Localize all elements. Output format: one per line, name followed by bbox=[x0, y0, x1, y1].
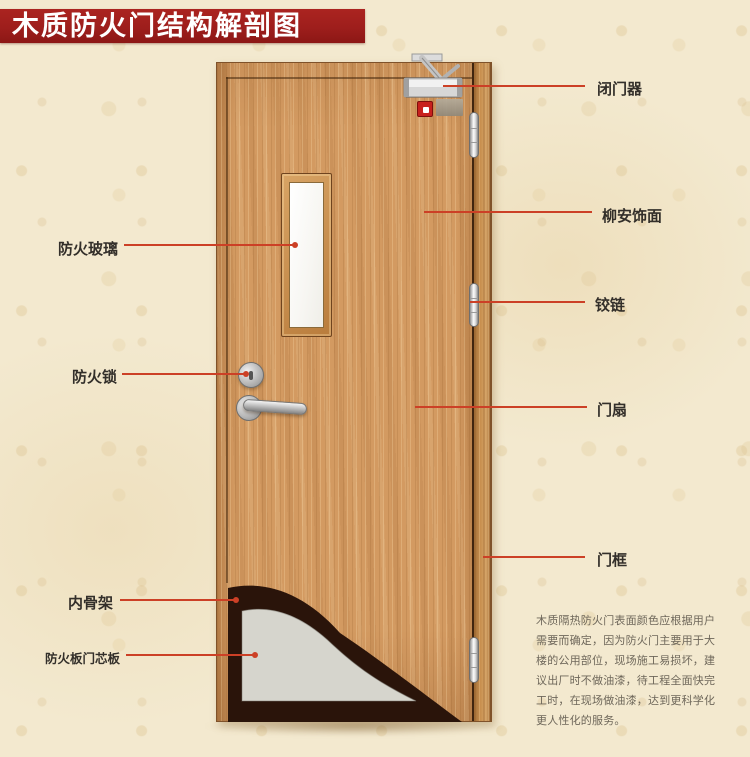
leader-line-fire-lock bbox=[122, 373, 247, 375]
leader-line-door-leaf bbox=[415, 406, 587, 408]
leader-line-fire-glass bbox=[124, 244, 296, 246]
description-line: 楼的公用部位，现场施工易损坏，建 bbox=[536, 651, 732, 671]
leader-line-door-closer bbox=[443, 85, 585, 87]
label-core-board: 防火板门芯板 bbox=[45, 648, 120, 667]
fire-glass-window bbox=[281, 173, 332, 337]
description-line: 议出厂时不做油漆，待工程全面快完 bbox=[536, 671, 732, 691]
cutaway-section bbox=[228, 583, 462, 722]
label-hinge: 铰链 bbox=[595, 294, 625, 315]
label-door-closer: 闭门器 bbox=[597, 78, 642, 99]
description-line: 更人性化的服务。 bbox=[536, 711, 732, 731]
fire-door-structure-diagram: 木质防火门结构解剖图 bbox=[0, 0, 750, 757]
label-door-frame: 门框 bbox=[597, 549, 627, 570]
glass-pane bbox=[289, 182, 324, 328]
leader-line-lauan-veneer bbox=[424, 211, 592, 213]
description-line: 需要而确定，因为防火门主要用于大 bbox=[536, 631, 732, 651]
leader-line-door-frame bbox=[483, 556, 585, 558]
label-fire-glass: 防火玻璃 bbox=[58, 238, 118, 259]
leaf-groove-vertical bbox=[226, 77, 228, 583]
page-title: 木质防火门结构解剖图 bbox=[0, 9, 365, 43]
description-line: 木质隔热防火门表面颜色应根据用户 bbox=[536, 611, 732, 631]
alarm-indicator-light bbox=[423, 107, 429, 113]
label-lauan-veneer: 柳安饰面 bbox=[602, 205, 662, 226]
title-banner: 木质防火门结构解剖图 bbox=[0, 9, 365, 43]
description-line: 工时，在现场做油漆，达到更科学化 bbox=[536, 691, 732, 711]
label-sticker bbox=[436, 99, 463, 116]
hinge-top bbox=[469, 112, 479, 158]
leader-line-core-board bbox=[126, 654, 256, 656]
description-paragraph: 木质隔热防火门表面颜色应根据用户 需要而确定，因为防火门主要用于大 楼的公用部位… bbox=[536, 611, 732, 731]
label-inner-skeleton: 内骨架 bbox=[68, 592, 113, 613]
leader-line-hinge bbox=[470, 301, 585, 303]
door-frame-jamb bbox=[474, 63, 491, 721]
alarm-indicator bbox=[417, 101, 433, 117]
hinge-middle bbox=[469, 283, 479, 327]
fire-lock-cylinder bbox=[238, 362, 264, 388]
keyhole bbox=[249, 371, 253, 380]
hinge-bottom bbox=[469, 637, 479, 683]
label-fire-lock: 防火锁 bbox=[72, 366, 117, 387]
label-door-leaf: 门扇 bbox=[597, 399, 627, 420]
door-closer-device bbox=[398, 52, 470, 100]
leader-line-inner-skeleton bbox=[120, 599, 237, 601]
